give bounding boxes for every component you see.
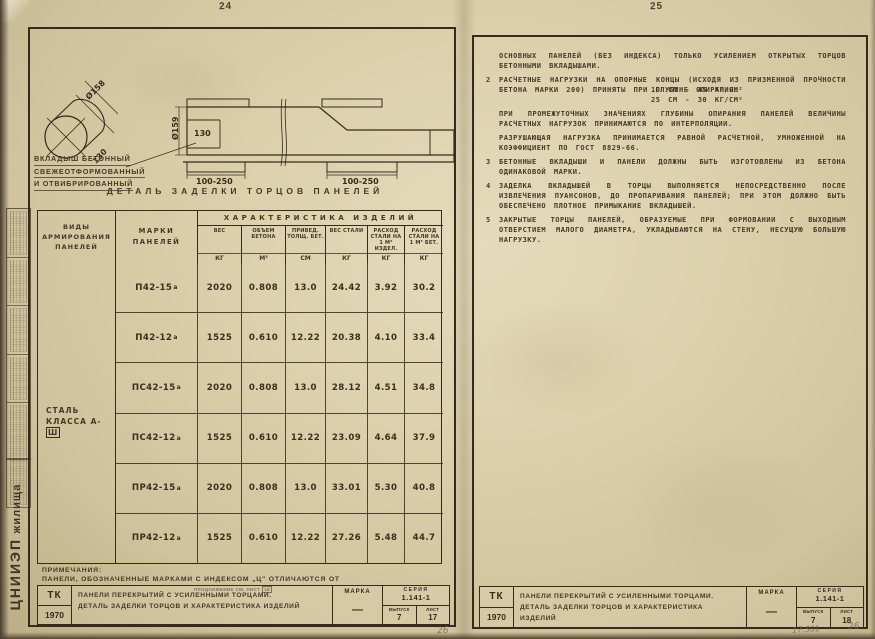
table-cell: 33.01 <box>326 464 368 513</box>
table-cell: 12.22 <box>286 313 326 362</box>
table-cell: 0.808 <box>242 363 286 412</box>
table-cell: 12.22 <box>286 414 326 463</box>
stamp-cell <box>7 209 30 258</box>
pencil-note: 26 <box>848 622 860 633</box>
scan-shadow-right <box>870 0 875 639</box>
panel-mark: П42-12а <box>116 313 198 362</box>
table-cell: 13.0 <box>286 464 326 513</box>
notes-line: Панели, обозначенные марками с индексом … <box>42 575 442 584</box>
table-group-header: Характеристика изделий <box>198 211 443 226</box>
title-block-org-cell: ТК 1970 <box>480 587 514 627</box>
notes: Примечания: Панели, обозначенные марками… <box>42 566 442 584</box>
sheet-24: Ø158 130 <box>28 27 456 627</box>
marka-cell: Марка — <box>747 587 797 627</box>
table-row: П42-12а15250.61012.2220.384.1033.4 <box>116 313 443 363</box>
issue-cell: Выпуск 7 <box>383 606 417 624</box>
table-cell: 0.808 <box>242 263 286 312</box>
paragraph-text: При промежуточных значениях глубины опир… <box>499 110 846 128</box>
dim-support-right: 100-250 <box>342 177 379 186</box>
paragraph-number: 3 <box>486 157 491 167</box>
series-number: 1.141-1 <box>383 593 449 602</box>
marka-cell: Марка — <box>333 586 383 624</box>
stamp-cell <box>7 355 30 404</box>
table-subheaders: Вескг Объем бетонам³ Привед. толщ. бет.с… <box>198 226 443 263</box>
note-paragraph: При промежуточных значениях глубины опир… <box>486 109 846 129</box>
table-cell: 4.64 <box>368 414 405 463</box>
table-cell: 0.610 <box>242 514 286 563</box>
paragraph-number: 4 <box>486 181 491 191</box>
table-row: ПР42-15а20200.80813.033.015.3040.8 <box>116 464 443 514</box>
panel-mark: ПР42-12а <box>116 514 198 563</box>
page-number-left: 24 <box>219 1 233 12</box>
org-code: ТК <box>38 586 71 606</box>
org-name: ЦНИИЭП <box>7 538 23 610</box>
characteristics-table: Виды армирования панелей Марки панелей Х… <box>37 210 442 564</box>
table-cell: 1525 <box>198 514 242 563</box>
title-block: ТК 1970 Панели перекрытий с усиленными т… <box>37 585 450 625</box>
table-cell: 34.8 <box>405 363 443 412</box>
dim-support-left: 100-250 <box>196 177 233 186</box>
table-cell: 0.808 <box>242 464 286 513</box>
note-paragraph: 4Заделка вкладышей в торцы выполняется н… <box>486 181 846 211</box>
signature-scribble <box>10 260 27 304</box>
table-cell: 2020 <box>198 464 242 513</box>
notes-text: Панели, обозначенные марками с индексом … <box>42 576 340 583</box>
bearing-value-line: 10 см - 45 кг/см² <box>651 85 846 95</box>
insert-label-line: свежеотформованный <box>34 166 145 179</box>
col-header-steel-per-m3: Расход стали на 1 м³ бет.кг <box>405 226 443 263</box>
title-block: ТК 1970 Панели перекрытий с усиленными т… <box>479 586 864 628</box>
org-code: ТК <box>480 587 513 608</box>
typewritten-notes: основных панелей (без индекса) только ус… <box>486 51 846 249</box>
scan-shadow-left <box>0 0 9 639</box>
signature-scribble <box>10 357 27 401</box>
paragraph-number: 5 <box>486 215 491 225</box>
title-block-org-cell: ТК 1970 <box>38 586 72 624</box>
page-number-right: 25 <box>650 1 664 12</box>
col-header-weight: Вескг <box>198 226 242 263</box>
col-header-reinforcement: Виды армирования панелей <box>38 211 116 263</box>
table-row: ПС42-15а20200.80813.028.124.5134.8 <box>116 363 443 413</box>
table-cell: 44.7 <box>405 514 443 563</box>
table-cell: 5.30 <box>368 464 405 513</box>
table-cell: 2020 <box>198 363 242 412</box>
table-cell: 1525 <box>198 414 242 463</box>
series-number: 1.141-1 <box>797 594 863 603</box>
col-header-steel-per-m2: Расход стали на 1 м² издел.кг <box>368 226 405 263</box>
stamp-cell <box>7 258 30 307</box>
dim-insert-diameter: Ø158 <box>83 77 107 101</box>
paragraph-text: Разрушающая нагрузка принимается равной … <box>499 134 846 152</box>
sheet-title: Панели перекрытий с усиленными торцами. … <box>72 586 333 624</box>
scan-shadow-bottom <box>0 632 875 639</box>
table-cell: 2020 <box>198 263 242 312</box>
panel-mark: ПС42-15а <box>116 363 198 412</box>
table-cell: 13.0 <box>286 363 326 412</box>
steel-class-text: Сталь класса А-Ш <box>46 405 115 438</box>
paragraph-text: Закрытые торцы панелей, образуемые при ф… <box>499 216 846 244</box>
note-paragraph: основных панелей (без индекса) только ус… <box>486 51 846 71</box>
signature-scribble <box>10 211 27 255</box>
table-row: П42-15а20200.80813.024.423.9230.2 <box>116 263 443 313</box>
col-header-marks: Марки панелей <box>116 211 198 263</box>
insert-label-line: Вкладыш бетонный <box>34 153 131 166</box>
signature-scribble <box>10 308 27 352</box>
col-header-steel-weight: Вес сталикг <box>326 226 368 263</box>
table-cell: 24.42 <box>326 263 368 312</box>
table-cell: 0.610 <box>242 313 286 362</box>
note-paragraph: Разрушающая нагрузка принимается равной … <box>486 133 846 153</box>
table-row: ПР42-12а15250.61012.2227.265.4844.7 <box>116 514 443 563</box>
notes-heading: Примечания: <box>42 566 442 575</box>
drawing-caption: Деталь заделки торцов панелей <box>80 186 410 196</box>
paragraph-text: Бетонные вкладыши и панели должны быть и… <box>499 158 846 176</box>
note-paragraph: 5Закрытые торцы панелей, образуемые при … <box>486 215 846 245</box>
steel-class-roman: Ш <box>46 427 60 438</box>
table-rows: П42-15а20200.80813.024.423.9230.2П42-12а… <box>116 263 443 563</box>
table-cell: 27.26 <box>326 514 368 563</box>
table-cell: 30.2 <box>405 263 443 312</box>
org-name-suffix: жилища <box>11 484 23 534</box>
panel-mark: ПС42-12а <box>116 414 198 463</box>
table-cell: 0.610 <box>242 414 286 463</box>
year: 1970 <box>38 606 71 625</box>
organization-name-vertical: ЦНИИЭП жилища <box>7 461 29 633</box>
stamp-cell <box>7 403 30 463</box>
insert-label: Вкладыш бетонный свежеотформованный и от… <box>34 153 145 191</box>
table-cell: 20.38 <box>326 313 368 362</box>
scanned-sheet: 24 25 ЦНИИЭП жилища <box>0 0 875 639</box>
table-cell: 37.9 <box>405 414 443 463</box>
year: 1970 <box>480 608 513 628</box>
col-header-reduced-thickness: Привед. толщ. бет.см <box>286 226 326 263</box>
paragraph-number: 2 <box>486 75 491 85</box>
note-paragraph: 2Расчетные нагрузки на опорные концы (ис… <box>486 75 846 105</box>
panel-mark: П42-15а <box>116 263 198 312</box>
table-cell: 28.12 <box>326 363 368 412</box>
col-header-concrete-volume: Объем бетонам³ <box>242 226 286 263</box>
table-cell: 4.51 <box>368 363 405 412</box>
table-cell: 40.8 <box>405 464 443 513</box>
dim-section-inner: 130 <box>194 129 211 138</box>
table-row: ПС42-12а15250.61012.2223.094.6437.9 <box>116 414 443 464</box>
table-cell: 13.0 <box>286 263 326 312</box>
table-cell: 1525 <box>198 313 242 362</box>
sheet-number-cell: Лист 17 <box>417 606 450 624</box>
table-cell: 5.48 <box>368 514 405 563</box>
bearing-value-line: 25 см - 30 кг/см² <box>651 95 846 105</box>
bearing-values: 10 см - 45 кг/см²25 см - 30 кг/см² <box>651 85 846 105</box>
marka-value: — <box>766 596 777 627</box>
signature-scribble <box>10 405 27 461</box>
sheet-title: Панели перекрытий с усиленными торцами. … <box>514 587 747 627</box>
panel-mark: ПР42-15а <box>116 464 198 513</box>
paragraph-text: Заделка вкладышей в торцы выполняется не… <box>499 182 846 210</box>
marka-value: — <box>352 595 363 624</box>
stamp-cell <box>7 306 30 355</box>
table-cell: 23.09 <box>326 414 368 463</box>
dim-section-diameter: Ø159 <box>170 116 180 140</box>
series-cell: Серия 1.141-1 Выпуск 7 Лист 17 <box>383 586 449 624</box>
steel-class-cell: Сталь класса А-Ш <box>38 263 116 563</box>
note-paragraph: 3Бетонные вкладыши и панели должны быть … <box>486 157 846 177</box>
table-cell: 33.4 <box>405 313 443 362</box>
table-cell: 3.92 <box>368 263 405 312</box>
sheet-25: основных панелей (без индекса) только ус… <box>472 35 868 629</box>
paragraph-text: основных панелей (без индекса) только ус… <box>499 52 846 70</box>
panel-end-section: 130 Ø159 100-250 100-250 <box>170 99 454 186</box>
table-cell: 4.10 <box>368 313 405 362</box>
table-cell: 12.22 <box>286 514 326 563</box>
